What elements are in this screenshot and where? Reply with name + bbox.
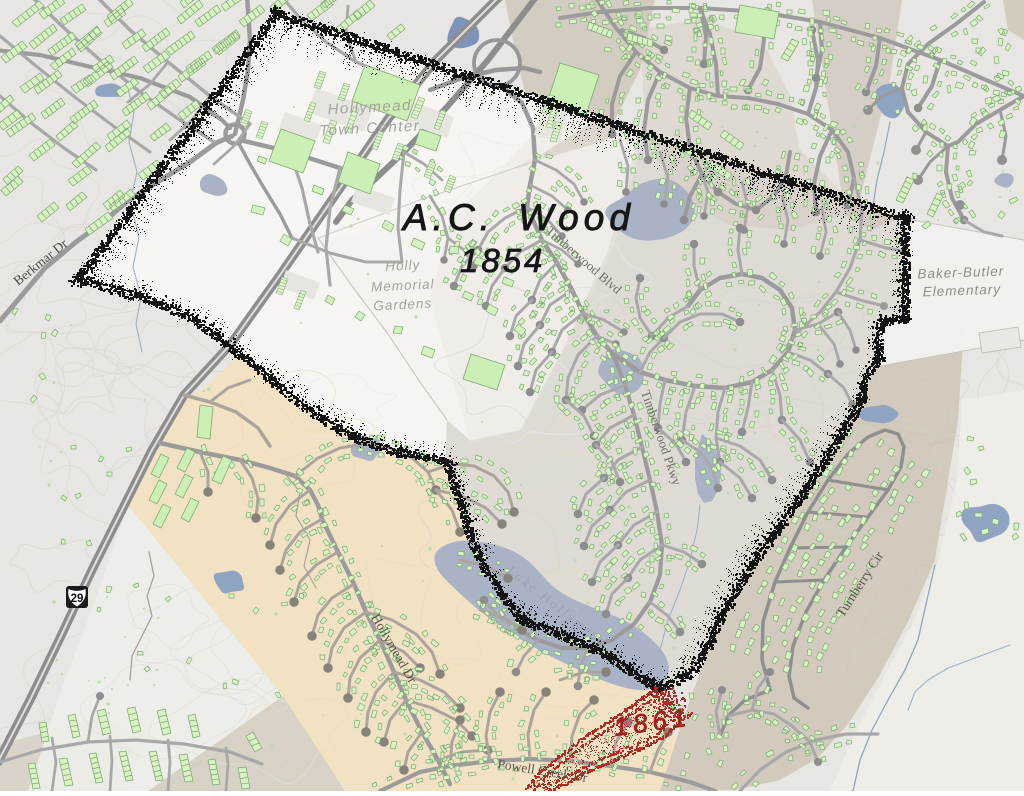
svg-text:Baker-Butler: Baker-Butler xyxy=(917,263,1004,281)
svg-text:29: 29 xyxy=(71,593,84,605)
svg-text:1854: 1854 xyxy=(460,242,545,279)
svg-text:Gardens: Gardens xyxy=(373,295,432,313)
svg-text:Holly: Holly xyxy=(385,257,421,274)
svg-text:A.C. Wood: A.C. Wood xyxy=(401,197,635,238)
svg-text:Elementary: Elementary xyxy=(922,282,1001,300)
